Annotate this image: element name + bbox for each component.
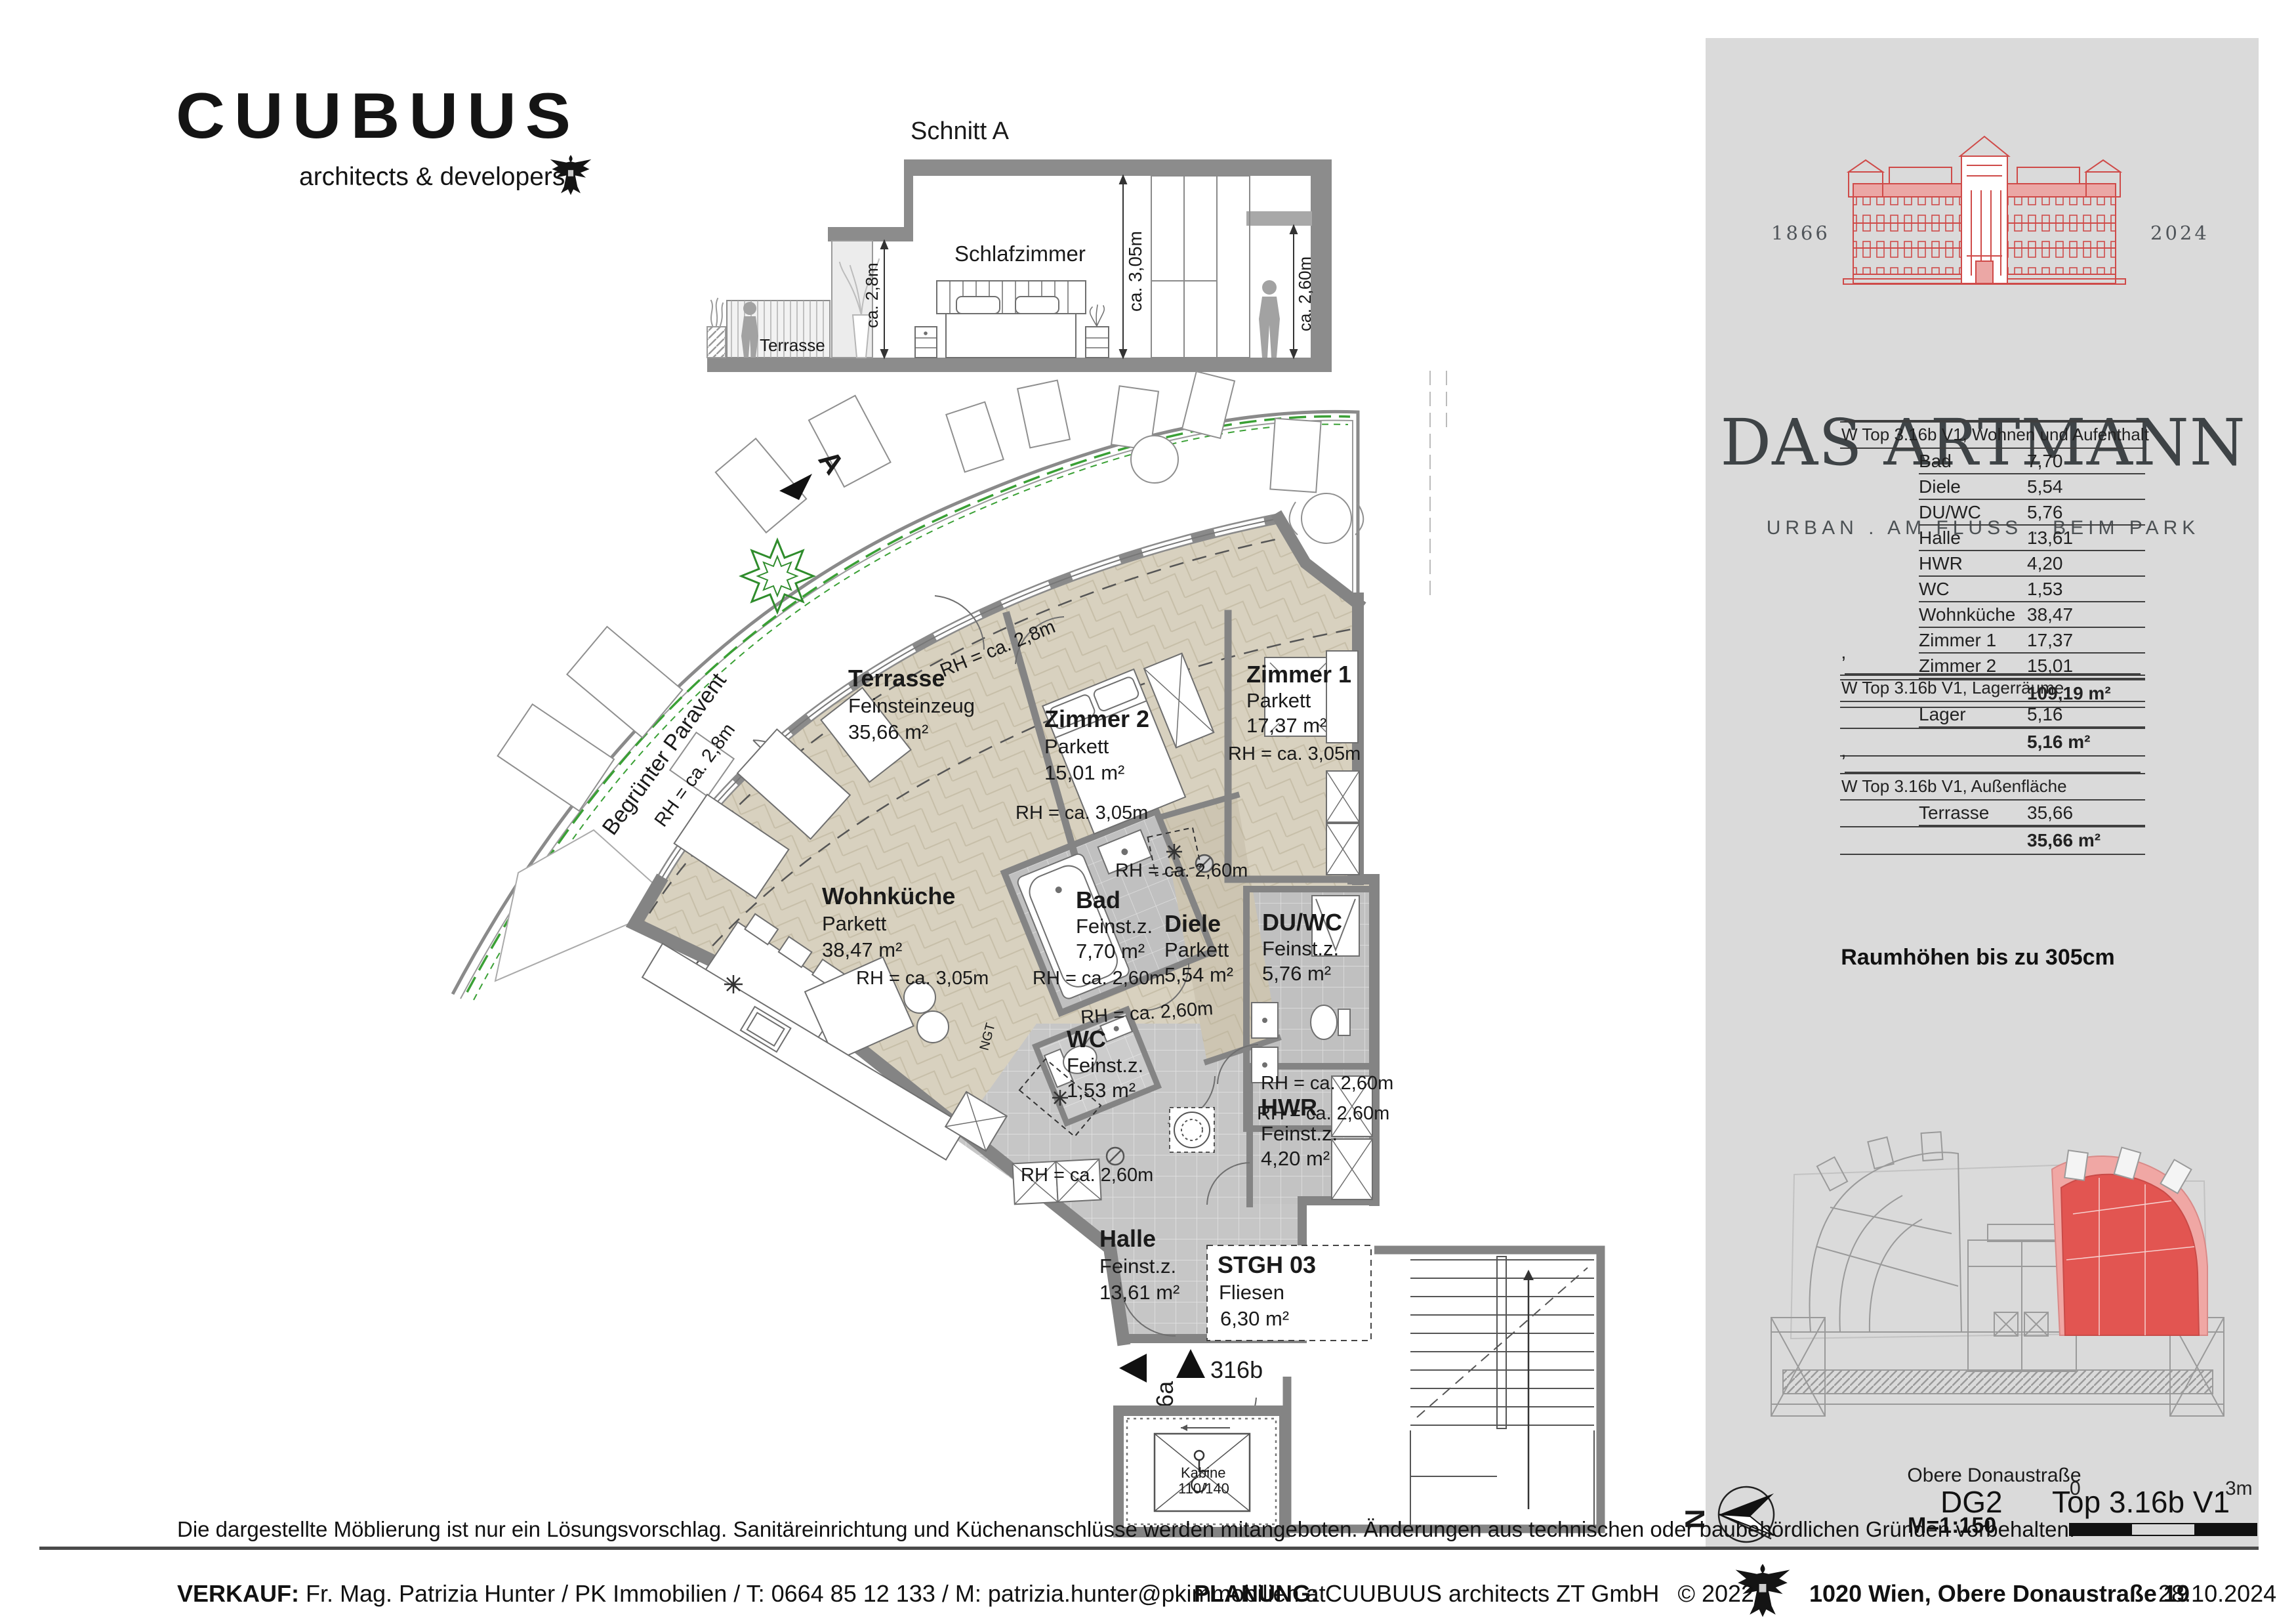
section-title: Schnitt A	[911, 117, 1010, 145]
scale-zero-label: 0	[2070, 1478, 2081, 1500]
svg-text:RH = ca. 3,05m: RH = ca. 3,05m	[1015, 802, 1148, 823]
footer-date: 28.10.2024	[2158, 1580, 2276, 1608]
svg-text:Fliesen: Fliesen	[1219, 1281, 1284, 1304]
area-table-aussen: ’ W Top 3.16b V1, Außenfläche Terrasse35…	[1840, 756, 2145, 855]
disclaimer-text: Die dargestellte Möblierung ist nur ein …	[177, 1517, 2075, 1542]
section-drawing: Schnitt A Schlafzimmer Terrasse ca. 2,8m…	[707, 117, 1332, 372]
svg-text:Parkett: Parkett	[1044, 735, 1109, 758]
hwr-washing-machine	[1170, 1108, 1214, 1152]
footer-sales: VERKAUF: Fr. Mag. Patrizia Hunter / PK I…	[177, 1580, 1326, 1608]
scale-bar	[2070, 1524, 2257, 1535]
svg-text:Terrasse: Terrasse	[848, 665, 945, 692]
svg-text:13,61 m²: 13,61 m²	[1099, 1281, 1179, 1304]
footer-divider	[39, 1547, 2259, 1550]
table-header: W Top 3.16b V1, Wohnen und Aufenthalt	[1840, 421, 2145, 449]
svg-text:5,76 m²: 5,76 m²	[1262, 962, 1331, 985]
svg-text:WC: WC	[1067, 1026, 1106, 1052]
sales-contact: Fr. Mag. Patrizia Hunter / PK Immobilien…	[306, 1580, 1326, 1607]
svg-text:Parkett: Parkett	[1164, 938, 1229, 961]
tree-icon	[741, 540, 813, 612]
sales-label: VERKAUF:	[177, 1580, 299, 1607]
svg-text:RH = ca. 2,60m: RH = ca. 2,60m	[1033, 968, 1165, 989]
svg-text:6,30 m²: 6,30 m²	[1220, 1307, 1289, 1330]
svg-text:1,53 m²: 1,53 m²	[1067, 1079, 1136, 1102]
planning-label: PLANUNG:	[1194, 1580, 1319, 1607]
table-row: Diele5,54	[1919, 474, 2145, 500]
cooktop-icon	[724, 975, 743, 993]
year-left: 1866	[1771, 222, 1830, 244]
svg-text:Feinst.z.: Feinst.z.	[1076, 915, 1153, 938]
floor-plan: Begrünter Paravent	[453, 371, 1601, 1532]
table-row: Zimmer 117,37	[1919, 628, 2145, 654]
section-dim-305: ca. 3,05m	[1125, 231, 1145, 312]
logo-tagline: architects & developers	[299, 163, 565, 192]
person-silhouette-room	[1259, 280, 1280, 358]
table-total: 35,66 m²	[1840, 826, 2145, 855]
elevator-size-label: 110/140	[1178, 1480, 1229, 1497]
table-row: DU/WC5,76	[1919, 500, 2145, 526]
svg-text:Wohnküche: Wohnküche	[822, 883, 955, 909]
year-right: 2024	[2150, 222, 2209, 244]
svg-text:38,47 m²: 38,47 m²	[822, 938, 902, 961]
svg-text:Parkett: Parkett	[1246, 689, 1311, 712]
building-illustration	[1843, 136, 2125, 284]
svg-text:STGH 03: STGH 03	[1218, 1251, 1316, 1278]
scale-three-label: 3m	[2225, 1478, 2253, 1500]
area-table-lager: ’ W Top 3.16b V1, Lagerräume Lager5,16 5…	[1840, 657, 2145, 757]
table-row: Halle13,61	[1919, 526, 2145, 551]
svg-text:Parkett: Parkett	[822, 912, 887, 935]
svg-text:7,70 m²: 7,70 m²	[1076, 940, 1145, 963]
table-header: W Top 3.16b V1, Lagerräume	[1840, 675, 2145, 702]
planning-company: CUUBUUS architects ZT GmbH	[1325, 1580, 1659, 1607]
section-dim-260: ca. 2,60m	[1295, 257, 1315, 331]
svg-text:HWR: HWR	[1261, 1094, 1317, 1121]
elevator-label: Kabine	[1181, 1465, 1226, 1481]
svg-text:DU/WC: DU/WC	[1262, 909, 1342, 936]
plan-sheet: Schnitt A Schlafzimmer Terrasse ca. 2,8m…	[0, 0, 2296, 1624]
svg-text:Feinst.z.: Feinst.z.	[1099, 1255, 1176, 1278]
footer-address: 1020 Wien, Obere Donaustraße 19	[1809, 1580, 2190, 1608]
svg-text:Feinst.z.: Feinst.z.	[1261, 1122, 1338, 1145]
svg-text:35,66 m²: 35,66 m²	[848, 720, 928, 743]
svg-text:Feinst.z.: Feinst.z.	[1262, 937, 1339, 960]
table-tick: ’	[1840, 657, 2145, 675]
svg-text:RH = ca. 2,60m: RH = ca. 2,60m	[1261, 1073, 1393, 1094]
room-height-note: Raumhöhen bis zu 305cm	[1841, 945, 2115, 970]
svg-text:RH = ca. 2,60m: RH = ca. 2,60m	[1115, 860, 1248, 881]
section-dim-28: ca. 2,8m	[862, 262, 882, 328]
table-total: 5,16 m²	[1840, 728, 2145, 757]
table-row: Wohnküche38,47	[1919, 602, 2145, 628]
table-header: W Top 3.16b V1, Außenfläche	[1840, 773, 2145, 801]
svg-text:Feinsteinzeug: Feinsteinzeug	[848, 694, 975, 717]
table-row: Terrasse35,66	[1919, 801, 2145, 826]
section-room-label: Schlafzimmer	[954, 241, 1086, 266]
svg-text:5,54 m²: 5,54 m²	[1164, 963, 1233, 986]
table-tick: ’	[1840, 756, 2145, 773]
svg-text:Diele: Diele	[1164, 910, 1221, 937]
mini-key-plan	[1771, 1132, 2224, 1416]
table-row: HWR4,20	[1919, 551, 2145, 577]
door-316b-label: 316b	[1210, 1356, 1263, 1383]
svg-text:Zimmer 1: Zimmer 1	[1246, 661, 1351, 688]
svg-text:Bad: Bad	[1076, 886, 1120, 913]
svg-text:Halle: Halle	[1099, 1225, 1156, 1252]
svg-text:RH = ca. 3,05m: RH = ca. 3,05m	[1228, 743, 1361, 764]
footer-planning: PLANUNG: CUUBUUS architects ZT GmbH © 20…	[1194, 1580, 1754, 1608]
section-terrace-label: Terrasse	[760, 335, 825, 355]
street-label: Obere Donaustraße	[1907, 1465, 2081, 1486]
svg-text:RH = ca. 2,60m: RH = ca. 2,60m	[1021, 1165, 1153, 1186]
logo-wordmark: CUUBUUS	[176, 79, 580, 153]
planning-copyright: © 2022	[1677, 1580, 1754, 1607]
svg-text:15,01 m²: 15,01 m²	[1044, 761, 1124, 784]
svg-text:4,20 m²: 4,20 m²	[1261, 1147, 1330, 1170]
table-row: Bad7,70	[1919, 449, 2145, 474]
svg-text:17,37 m²: 17,37 m²	[1246, 714, 1326, 737]
company-logo: CUUBUUS	[176, 79, 557, 153]
svg-text:RH = ca. 3,05m: RH = ca. 3,05m	[856, 968, 989, 989]
section-bed	[915, 281, 1109, 358]
svg-text:Zimmer 2: Zimmer 2	[1044, 705, 1149, 732]
table-row: WC1,53	[1919, 577, 2145, 602]
elevator: Kabine 110/140	[1118, 1411, 1284, 1532]
svg-text:Feinst.z.: Feinst.z.	[1067, 1054, 1143, 1077]
table-row: Lager5,16	[1919, 702, 2145, 728]
